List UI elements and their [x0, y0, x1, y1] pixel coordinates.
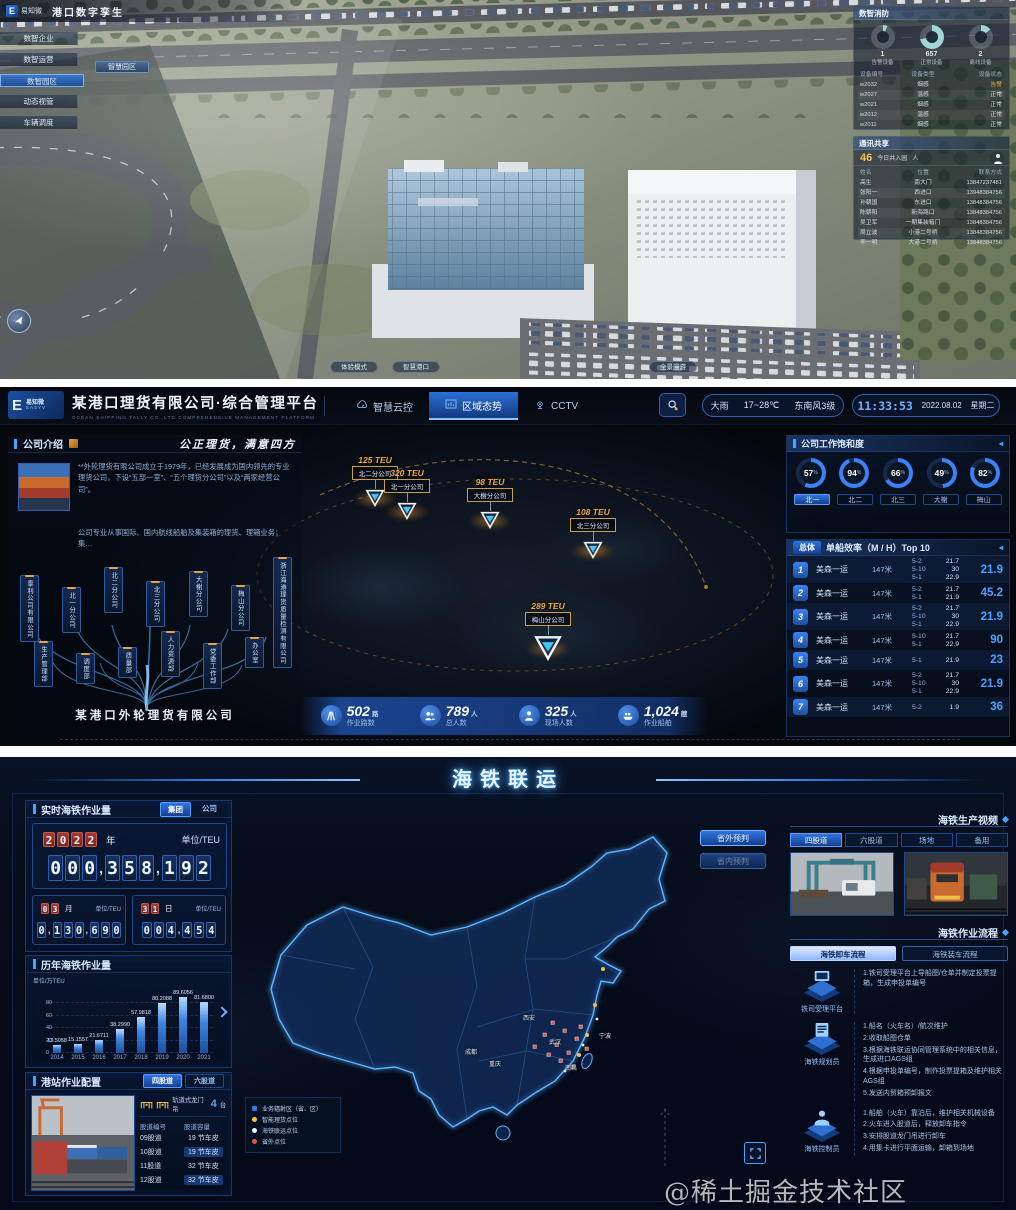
saturation-tab-梅山[interactable]: 梅山	[966, 494, 1002, 505]
device-donut-2: 657正常设备	[920, 25, 944, 66]
step-line: 4.用集卡进行平面运输，卸箱到场地	[863, 1144, 1008, 1154]
legend-label: 海铁联运点位	[262, 1126, 298, 1135]
company-photo	[18, 463, 70, 511]
clock-date: 2022.08.02	[922, 401, 962, 410]
berth-code: 5-10	[912, 680, 926, 687]
track-id: 12股道	[140, 1175, 184, 1185]
cell: 13848384756	[946, 218, 1005, 228]
saturation-tab-北一[interactable]: 北一	[794, 494, 830, 505]
rank-badge: 7	[793, 699, 808, 715]
berth-value: 30	[951, 680, 959, 687]
efficiency-total: 21.9	[965, 678, 1003, 690]
cell: w2032	[858, 80, 900, 90]
cell: 正常	[946, 100, 1005, 110]
video-tab-六股道[interactable]: 六股道	[845, 833, 897, 847]
watermark: @稀土掘金技术社区	[664, 1172, 907, 1209]
toggle-company[interactable]: 公司	[195, 802, 224, 817]
month-suffix: 月	[65, 903, 73, 914]
x-tick-label: 2015	[71, 1055, 84, 1061]
sea-rail-title: 海铁联运	[0, 763, 1016, 792]
berth-code: 5-10	[912, 633, 926, 640]
digit: 2	[196, 855, 211, 881]
header-accent	[33, 1076, 36, 1086]
berth-value: 22.9	[946, 621, 959, 628]
app-logo: E 易知微	[6, 5, 42, 17]
year-value-digits: 000,358,192	[33, 851, 226, 885]
efficiency-total: 36	[965, 701, 1003, 713]
berth-sublist: 5-121.9	[906, 657, 965, 664]
chart-next-button[interactable]	[216, 1006, 227, 1017]
ship-length: 147米	[872, 655, 906, 666]
location-pin-icon	[480, 511, 500, 529]
sidebar-item-1[interactable]: 数智企业	[0, 32, 78, 45]
expand-icon	[749, 1147, 762, 1160]
device-header-row: 设备编号设备类型设备状态	[858, 70, 1005, 80]
realtime-volume-panel: 实时海铁作业量 集团 公司 2022 年 单位/TEU 000,358,192 …	[25, 800, 232, 952]
org-box-label: 质量部	[123, 652, 132, 674]
cell: 13848384756	[946, 208, 1005, 218]
header-accent	[33, 959, 36, 969]
cell: 正常	[946, 110, 1005, 120]
berth-line: 5-122.9	[906, 641, 965, 648]
stat-value: 325人	[545, 704, 577, 719]
track-capacity: 32 节车皮	[184, 1161, 223, 1171]
step-icon-column: 海铁控制员	[790, 1109, 854, 1156]
day-counter-block: 31 日 单位/TEU 004,454	[132, 895, 226, 945]
tab-four-tracks[interactable]: 四股道	[143, 1074, 182, 1088]
efficiency-top10-panel: 总体 单船效率（M / H）Top 10 ◂ 1美森一运147米5-221.75…	[786, 539, 1010, 737]
org-box-label: 调度部	[81, 658, 90, 680]
today-entry-count: 46 今日共入园 人	[854, 150, 1009, 166]
nav-regional-situation-icon	[445, 399, 457, 412]
digit: 4	[206, 922, 216, 938]
track-table-header: 股道编号 股道容量	[140, 1121, 226, 1131]
org-box-label: 办公室	[250, 642, 259, 664]
cell: 烟感	[900, 100, 946, 110]
col-header: 设备编号	[858, 70, 900, 80]
top10-header: 总体 单船效率（M / H）Top 10 ◂	[787, 540, 1009, 556]
org-chart-bottom-row: 生产管理部调度部质量部人力资源部党委工作部办公室	[34, 631, 264, 689]
search-button[interactable]	[659, 393, 686, 417]
dashed-divider	[60, 739, 960, 740]
gauge-percent: %	[857, 470, 861, 476]
stat-total-people: 789人总人数	[420, 704, 478, 727]
donut-label: 正常设备	[920, 58, 942, 66]
main-nav: 智慧云控区域态势CCTV	[340, 392, 594, 420]
step-line: 3.根据海铁联运协同管理系统中的相关信息，生成进口AGS组	[863, 1046, 1008, 1066]
saturation-header: 公司工作饱和度 ◂	[787, 436, 1009, 452]
tab-six-tracks[interactable]: 六股道	[185, 1074, 224, 1088]
cell: 温感	[900, 110, 946, 120]
efficiency-total: 45.2	[965, 587, 1003, 599]
panel-more-icon[interactable]: ◂	[999, 439, 1003, 448]
donut-label: 离线设备	[969, 58, 991, 66]
scene-mode-button-2[interactable]: 智慧港口	[392, 361, 440, 373]
berth-line: 5-1030	[906, 566, 965, 573]
city-label-南昌: 南昌	[565, 1063, 577, 1072]
org-box-label: 泰利公司有限公司	[25, 580, 34, 638]
digit: 8	[139, 855, 154, 881]
teu-marker-2[interactable]: 320 TEU北一分公司	[362, 468, 452, 520]
nav-label: 区域态势	[462, 398, 502, 413]
ship-length: 147米	[872, 588, 906, 599]
contacts-panel: 通讯共享 46 今日共入园 人 姓名位置联系方式高生南大门13847237481…	[853, 136, 1010, 240]
org-box-大榭分公司: 大榭分公司	[189, 571, 208, 617]
realtime-title: 实时海铁作业量	[41, 802, 111, 817]
stat-value: 502路	[347, 704, 379, 719]
top10-title: 单船效率（M / H）Top 10	[826, 541, 930, 554]
saturation-tab-北三[interactable]: 北三	[880, 494, 916, 505]
legend-label: 智能理货点位	[262, 1115, 298, 1124]
gantry-crane-icon	[156, 1099, 169, 1110]
marker-stem	[407, 493, 408, 502]
digit: 2	[43, 832, 55, 847]
cell: 一期集装箱门	[900, 218, 946, 228]
cell: 南大门	[900, 178, 946, 188]
comma: ,	[48, 925, 51, 935]
video-thumb-gantry[interactable]	[790, 852, 894, 916]
step-text-list: 1.船舶（火车）靠泊后，维护相关机械设备2.火车进入股道后，释放卸车指令3.安排…	[854, 1109, 1008, 1156]
gauge-ring: 57%	[796, 458, 826, 488]
saturation-tab-北二[interactable]: 北二	[837, 494, 873, 505]
operation-process-panel: 海铁作业流程 海铁卸车流程海铁装车流程 铁司受理平台1.铁司受理平台上导船图/仓…	[790, 925, 1008, 1199]
weather-condition: 大雨	[711, 399, 729, 412]
weather-widget: 大雨 17~28℃ 东南风3级	[702, 394, 844, 417]
device-panel-header: 数智消防	[854, 7, 1009, 20]
day-unit: 单位/TEU	[195, 904, 221, 913]
marker-stem	[548, 626, 549, 635]
contacts-panel-header: 通讯共享	[854, 137, 1009, 150]
video-tab-备用[interactable]: 备用	[956, 833, 1008, 847]
cell: 大港二号桥	[900, 238, 946, 248]
x-tick-label: 2020	[176, 1055, 189, 1061]
stat-unit: 人	[471, 711, 478, 718]
step-line: 1.铁司受理平台上导船图/仓单并制定投票提箱，生成申投单编号	[863, 969, 1008, 989]
gauge-percent: %	[988, 470, 992, 476]
sea-rail-section: 海铁联运 实时海铁作业量 集团 公司 2022 年 单位/TEU 000,358…	[0, 757, 1016, 1210]
berth-sublist: 5-221.75-10305-122.9	[906, 605, 965, 628]
legend-swatch	[252, 1128, 257, 1133]
cell: 孙朝国	[858, 198, 900, 208]
track-row-12股道: 12股道32 节车皮	[140, 1173, 226, 1187]
station-header: 港站作业配置 四股道 六股道	[26, 1073, 231, 1090]
sidebar-item-5[interactable]: 车辆调度	[0, 116, 78, 129]
digit: 5	[122, 855, 137, 881]
berth-sublist: 5-1021.75-122.9	[906, 633, 965, 648]
saturation-gauge-1: 57%	[796, 458, 826, 488]
ship-name: 美森一运	[816, 588, 872, 599]
bar-2016: 21.67112016	[90, 1033, 108, 1053]
berth-code: 5-1	[912, 621, 922, 628]
contact-header-row: 姓名位置联系方式	[858, 168, 1005, 178]
ship-length: 147米	[872, 564, 906, 575]
bar-value-label: 21.6711	[89, 1033, 108, 1039]
cell: w2027	[858, 90, 900, 100]
org-box-浙江海港理货质量检测有限公司: 浙江海港理货质量检测有限公司	[273, 557, 292, 668]
saturation-tab-大榭[interactable]: 大榭	[923, 494, 959, 505]
header-divider	[324, 396, 325, 416]
digit: 0	[65, 855, 80, 881]
org-box-label: 大榭分公司	[194, 576, 203, 613]
station-photo	[31, 1095, 135, 1191]
fullscreen-button[interactable]	[744, 1142, 766, 1164]
berth-line: 5-1021.7	[906, 633, 965, 640]
video-tab-场地[interactable]: 场地	[901, 833, 953, 847]
cell: w2021	[858, 100, 900, 110]
year-digits: 2022	[39, 828, 101, 851]
gauge-ring: 82%	[970, 458, 1000, 488]
step-role-label: 铁司受理平台	[801, 1004, 843, 1014]
digit: 1	[151, 903, 159, 914]
digit: 6	[90, 922, 99, 938]
donut-value: 1	[881, 51, 885, 58]
cell: 告警	[946, 80, 1005, 90]
step-icon-column: 海铁规划员	[790, 1022, 854, 1101]
y-tick-20: 20	[46, 1038, 52, 1044]
station-tabs: 四股道 六股道	[143, 1074, 224, 1088]
contact-row-2: 张阳一西进口13948384756	[858, 188, 1005, 198]
video-header: 海铁生产视频	[790, 812, 1008, 827]
bar-value-label: 89.6056	[173, 990, 193, 996]
process-tabs: 海铁卸车流程海铁装车流程	[790, 946, 1008, 961]
gridline-20: 20	[46, 1040, 213, 1041]
top10-row-7: 7美森一运147米5-21.936	[787, 697, 1009, 717]
berth-value: 21.9	[946, 594, 959, 601]
device-monitor-panel: 数智消防 1告警设备657正常设备2离线设备 设备编号设备类型设备状态w2032…	[853, 6, 1010, 130]
legend-item-4: 省外点位	[252, 1136, 334, 1147]
cell: 13847237481	[946, 178, 1005, 188]
step-role-label: 海铁规划员	[805, 1057, 840, 1067]
org-box-北二分公司: 北二分公司	[104, 567, 123, 613]
rank-badge: 6	[793, 676, 808, 692]
berth-line: 5-121.9	[906, 594, 965, 601]
today-count-unit: 人	[912, 153, 918, 162]
x-tick-label: 2018	[134, 1055, 147, 1061]
stat-label: 作业路数	[347, 720, 379, 728]
org-box-label: 党委工作部	[208, 648, 217, 685]
video-tabs: 四股道六股道场地备用	[790, 833, 1008, 847]
sidebar-item-2[interactable]: 数智运营	[0, 53, 78, 66]
process-tab-海铁卸车流程[interactable]: 海铁卸车流程	[790, 946, 896, 961]
stat-work-routes-icon	[321, 705, 342, 726]
berth-value: 30	[951, 613, 959, 620]
top10-scope-tag[interactable]: 总体	[793, 541, 821, 554]
digit: 0	[154, 922, 164, 938]
clock-weekday: 星期二	[971, 400, 995, 411]
video-tab-四股道[interactable]: 四股道	[790, 833, 842, 847]
cell: 烟感	[900, 120, 946, 130]
header-accent	[14, 439, 17, 449]
berth-code: 5-2	[912, 605, 922, 612]
gantry-crane-icon	[140, 1099, 153, 1110]
donut-value: 657	[926, 51, 938, 58]
gauge-ring: 94%	[839, 458, 869, 488]
nav-smart-cloud-control[interactable]: 智慧云控	[340, 392, 429, 420]
page-title: 港口数字孪生	[52, 4, 124, 19]
berth-line: 5-122.9	[906, 621, 965, 628]
track-row-11股道: 11股道32 节车皮	[140, 1159, 226, 1173]
process-tab-海铁装车流程[interactable]: 海铁装车流程	[902, 946, 1008, 961]
col-track-id: 股道编号	[140, 1121, 184, 1131]
scene-mode-toolbar: 体验模式智慧港口全景漫游	[330, 361, 697, 373]
contact-row-3: 孙朝国东进口13848384756	[858, 198, 1005, 208]
nav-label: 智慧云控	[373, 399, 413, 414]
gauge-percent: %	[900, 470, 904, 476]
comma: ,	[156, 860, 160, 876]
berth-line: 5-121.9	[906, 657, 965, 664]
process-header: 海铁作业流程	[790, 925, 1008, 940]
gauge-percent: %	[813, 470, 817, 476]
stat-work-routes: 502路作业路数	[321, 704, 379, 727]
efficiency-total: 90	[965, 634, 1003, 646]
device-row-3: w2021烟感正常	[858, 100, 1005, 110]
cell: 东进口	[900, 198, 946, 208]
year-counter-block: 2022 年 单位/TEU 000,358,192	[32, 823, 227, 889]
digit: 2	[85, 832, 97, 847]
cell: 烟感	[900, 80, 946, 90]
bar-2021: 81.68002021	[195, 995, 213, 1053]
berth-code: 5-2	[912, 586, 922, 593]
stat-label: 总人数	[446, 720, 478, 728]
step-line: 2.火车进入股道后，释放卸车指令	[863, 1120, 1008, 1130]
weather-temp: 17~28℃	[744, 400, 779, 411]
berth-line: 5-221.7	[906, 605, 965, 612]
gauge-value: 82	[978, 468, 987, 478]
digit: 1	[53, 922, 62, 938]
toggle-group[interactable]: 集团	[160, 802, 191, 817]
berth-line: 5-21.9	[906, 704, 965, 711]
city-label-西安: 西安	[523, 1013, 535, 1022]
panel-more-icon[interactable]: ◂	[999, 543, 1003, 552]
org-box-人力资源部: 人力资源部	[161, 631, 180, 677]
digit: 0	[142, 922, 152, 938]
berth-code: 5-1	[912, 594, 922, 601]
gauge-value: 94	[847, 468, 856, 478]
bar-rect	[137, 1017, 145, 1053]
berth-value: 22.9	[946, 574, 959, 581]
top10-row-6: 6美森一运147米5-221.75-10305-122.921.9	[787, 670, 1009, 697]
video-thumb-train[interactable]	[904, 852, 1008, 916]
org-box-北一分公司: 北一分公司	[62, 587, 81, 633]
nav-regional-situation[interactable]: 区域态势	[429, 392, 518, 420]
stat-unit: 艘	[681, 711, 688, 718]
saturation-gauge-2: 94%	[839, 458, 869, 488]
teu-marker-4[interactable]: 108 TEU北三分公司	[548, 507, 638, 559]
marker-teu-value: 98 TEU	[476, 477, 505, 487]
berth-code: 5-2	[912, 672, 922, 679]
marker-teu-value: 108 TEU	[576, 507, 610, 517]
track-capacity: 32 节车皮	[184, 1175, 223, 1185]
org-box-质量部: 质量部	[118, 647, 137, 678]
col-track-capacity: 股道容量	[184, 1121, 210, 1131]
sidebar-item-4[interactable]: 动态视管	[0, 95, 78, 108]
platform-title: 某港口理货有限公司·综合管理平台	[72, 392, 318, 413]
stat-total-people-icon	[420, 705, 441, 726]
platform-header: E 易知微 EASYV 某港口理货有限公司·综合管理平台 OCEAN SHIPP…	[0, 387, 1016, 425]
teu-marker-3[interactable]: 98 TEU大榭分公司	[445, 477, 535, 529]
digit: 9	[101, 922, 110, 938]
scene-mode-button-3[interactable]: 全景漫游	[649, 361, 697, 373]
berth-value: 1.9	[950, 704, 959, 711]
org-box-label: 北三分公司	[151, 586, 160, 623]
rank-badge: 2	[793, 585, 808, 601]
berth-code: 5-1	[912, 641, 922, 648]
gridline-0: 0	[46, 1052, 213, 1053]
device-donut-3: 2离线设备	[969, 25, 993, 66]
donut-ring	[871, 25, 895, 49]
in-province-forecast-button[interactable]: 省内预判	[700, 853, 766, 869]
ship-name: 美森一运	[816, 655, 872, 666]
search-icon	[666, 398, 680, 412]
col-header: 设备状态	[946, 70, 1005, 80]
org-root-company: 某港口外轮理货有限公司	[8, 707, 302, 723]
step-line: 4.根据申投单编号，制作投票提箱及维护相关AGS组	[863, 1067, 1008, 1087]
step-line: 1.船舶（火车）靠泊后，维护相关机械设备	[863, 1109, 1008, 1119]
teu-marker-5[interactable]: 289 TEU梅山分公司	[503, 601, 593, 661]
digital-twin-section: E 易知微 港口数字孪生 数智企业数智运营数智园区动态视管车辆调度 智慧园区 数…	[0, 0, 1016, 379]
cell: 13948384756	[946, 188, 1005, 198]
navigate-button[interactable]	[7, 309, 31, 333]
digit: 0	[37, 922, 46, 938]
org-box-label: 生产管理部	[39, 646, 48, 683]
scene-mode-button-1[interactable]: 体验模式	[330, 361, 378, 373]
saturation-title: 公司工作饱和度	[801, 437, 864, 450]
saturation-gauge-3: 66%	[883, 458, 913, 488]
device-row-4: w2012温感正常	[858, 110, 1005, 120]
nav-cctv[interactable]: CCTV	[518, 392, 594, 420]
cell: 吴卫军	[858, 218, 900, 228]
stat-value: 1,024艘	[644, 704, 688, 719]
day-suffix: 日	[165, 903, 173, 914]
platform-3d-icon	[802, 969, 842, 1002]
marker-stem	[490, 502, 491, 511]
sidebar-item-3[interactable]: 数智园区	[0, 74, 84, 87]
crane-label: 轨道式龙门吊	[172, 1095, 207, 1113]
production-video-panel: 海铁生产视频 四股道六股道场地备用	[790, 812, 1008, 916]
x-tick-label: 2014	[50, 1055, 63, 1061]
cell: 13848384756	[946, 198, 1005, 208]
nav-cctv-icon	[534, 400, 546, 413]
month-value-digits: 0,130,690	[33, 918, 125, 942]
device-donut-1: 1告警设备	[871, 25, 895, 66]
donut-ring	[920, 25, 944, 49]
col-header: 联系方式	[946, 168, 1005, 178]
cell: 正常	[946, 90, 1005, 100]
berth-value: 21.7	[946, 672, 959, 679]
device-donut-charts: 1告警设备657正常设备2离线设备	[854, 20, 1009, 68]
berth-value: 21.7	[946, 633, 959, 640]
out-province-forecast-button[interactable]: 省外预判	[700, 830, 766, 846]
submenu-button[interactable]: 智慧园区	[95, 61, 149, 73]
top10-row-4: 4美森一运147米5-1021.75-122.990	[787, 630, 1009, 650]
company-header-title: 公司介绍	[23, 436, 63, 451]
stat-value: 789人	[446, 704, 478, 719]
comma: ,	[86, 925, 89, 935]
berth-sublist: 5-221.75-10305-122.9	[906, 672, 965, 695]
city-label-成都: 成都	[465, 1047, 477, 1056]
stat-working-ships-icon	[618, 705, 639, 726]
scope-toggle: 集团 公司	[160, 802, 224, 817]
comma: ,	[99, 860, 103, 876]
city-label-武汉: 武汉	[549, 1037, 561, 1046]
month-counter-block: 03 月 单位/TEU 0,130,690	[32, 895, 126, 945]
digit: 0	[57, 832, 69, 847]
marker-branch-name: 北一分公司	[384, 479, 431, 493]
berth-code: 5-10	[912, 613, 926, 620]
legend-item-3: 海铁联运点位	[252, 1125, 334, 1136]
marker-branch-name: 大榭分公司	[467, 488, 514, 502]
legend-swatch	[252, 1106, 257, 1111]
